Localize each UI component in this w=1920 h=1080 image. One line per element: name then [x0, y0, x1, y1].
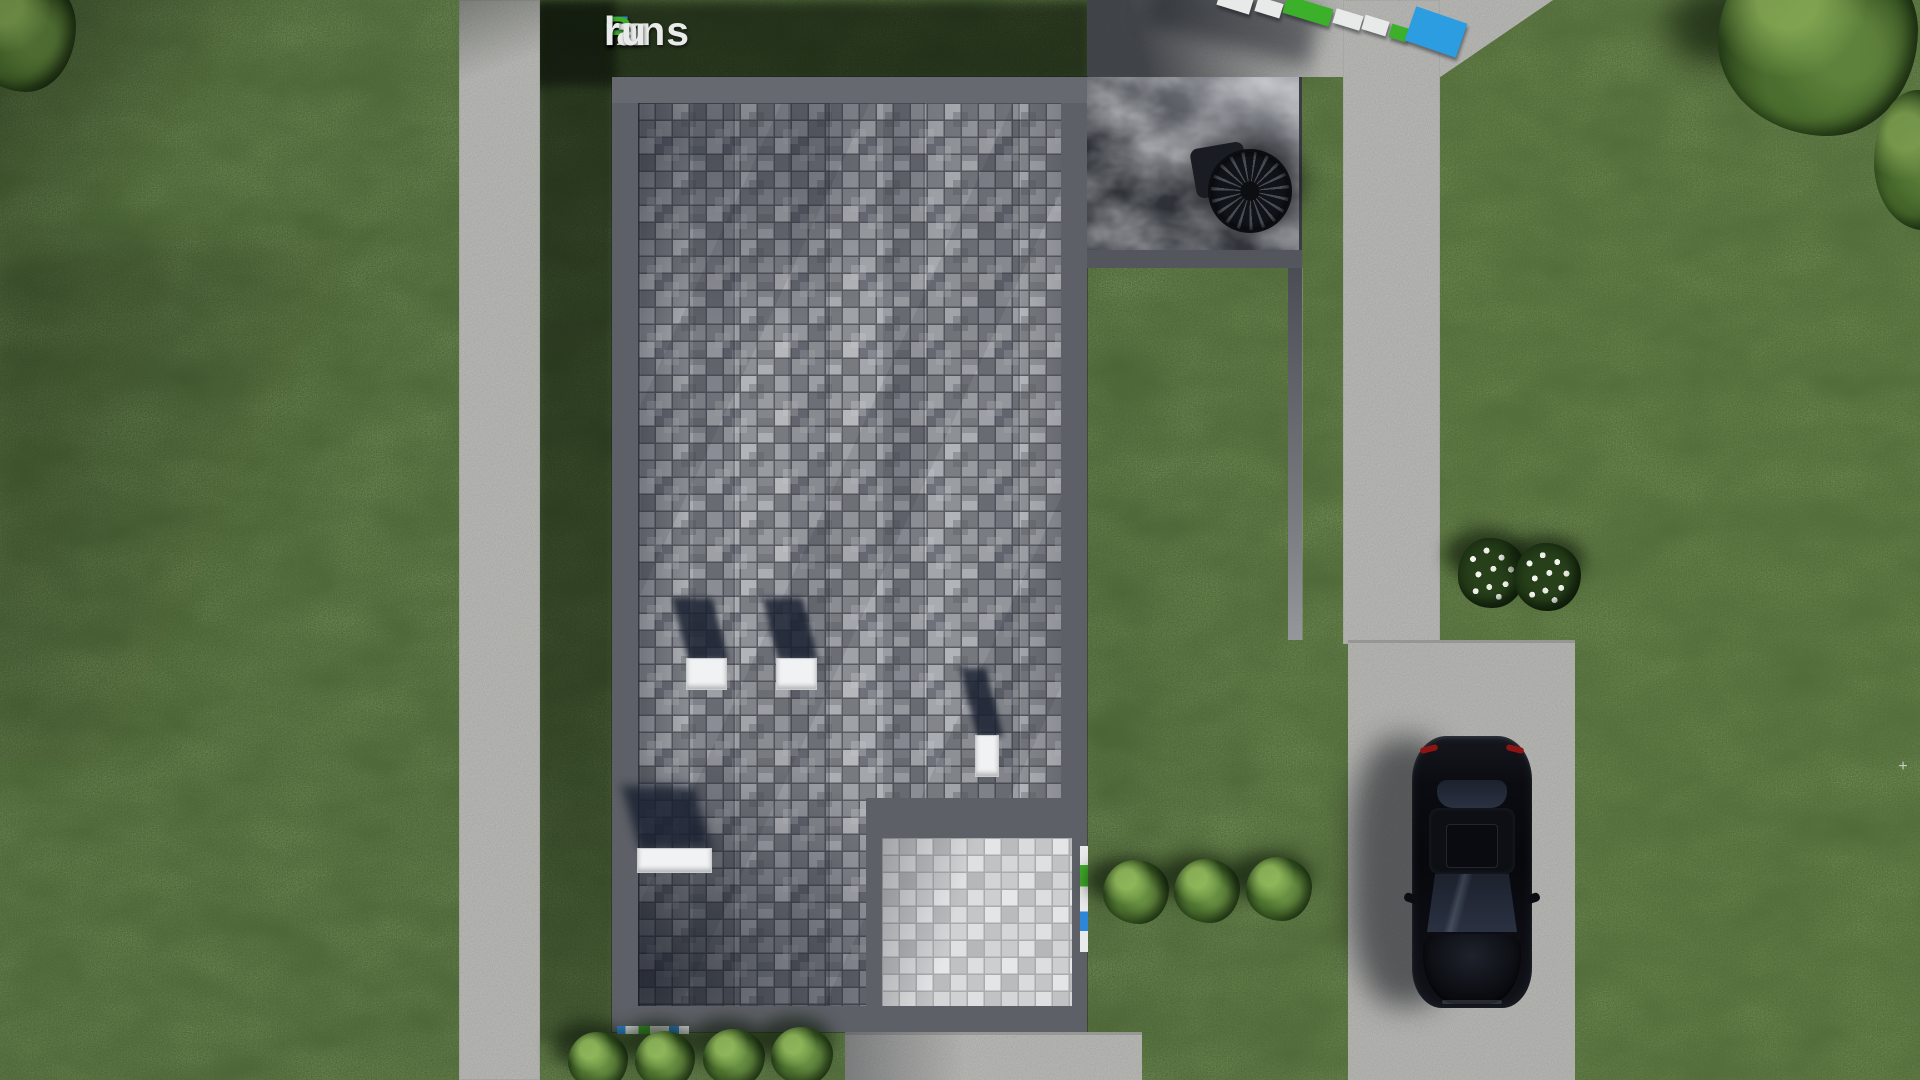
taillight-right	[1506, 744, 1525, 754]
lower-porch	[866, 798, 1087, 1032]
flower-bush	[1515, 543, 1581, 611]
bottom-pad-shadow	[845, 1032, 965, 1080]
terrace-bottom-border	[1087, 250, 1302, 268]
car	[1404, 730, 1540, 1014]
left-walkway	[459, 0, 540, 1080]
right-walkway	[1343, 0, 1440, 644]
side-mirror-right	[1523, 892, 1541, 906]
skylight-vent-1	[686, 658, 727, 690]
roof-parapet-highlight	[612, 77, 1087, 103]
skylight-vent-4	[637, 848, 712, 873]
tree-shadow-left-lawn	[0, 240, 480, 760]
watermark-segment: ru	[604, 8, 647, 55]
watermark-strip-right	[1080, 846, 1088, 952]
car-roof-panel	[1429, 808, 1515, 874]
left-walkway-noise	[459, 0, 540, 1080]
skylight-vent-3	[975, 735, 999, 777]
bush	[568, 1032, 628, 1080]
bottom-pad	[845, 1032, 1142, 1080]
bush	[1174, 859, 1240, 923]
terrace-marble	[1087, 77, 1302, 268]
spiral-staircase	[1208, 149, 1292, 233]
car-hood	[1423, 934, 1521, 1004]
windshield	[1427, 874, 1517, 932]
site-plan-render: FixPlans.ru +	[0, 0, 1920, 1080]
skylight-vent-2	[776, 658, 817, 690]
rear-window	[1437, 780, 1507, 808]
right-walkway-noise	[1343, 0, 1440, 644]
car-body	[1412, 736, 1532, 1008]
front-bumper-highlight	[1442, 1000, 1502, 1004]
plus-marker: +	[1896, 760, 1910, 774]
bush	[635, 1031, 695, 1080]
porch-shading	[882, 838, 1072, 1006]
porch-pavers	[882, 838, 1072, 1006]
sunroof	[1446, 824, 1498, 868]
building-shadow-left-strip	[536, 0, 616, 1042]
left-walkway-top-shadow	[459, 0, 540, 90]
garden-wall	[1288, 268, 1302, 640]
bush	[1246, 857, 1312, 921]
bush	[771, 1027, 833, 1080]
